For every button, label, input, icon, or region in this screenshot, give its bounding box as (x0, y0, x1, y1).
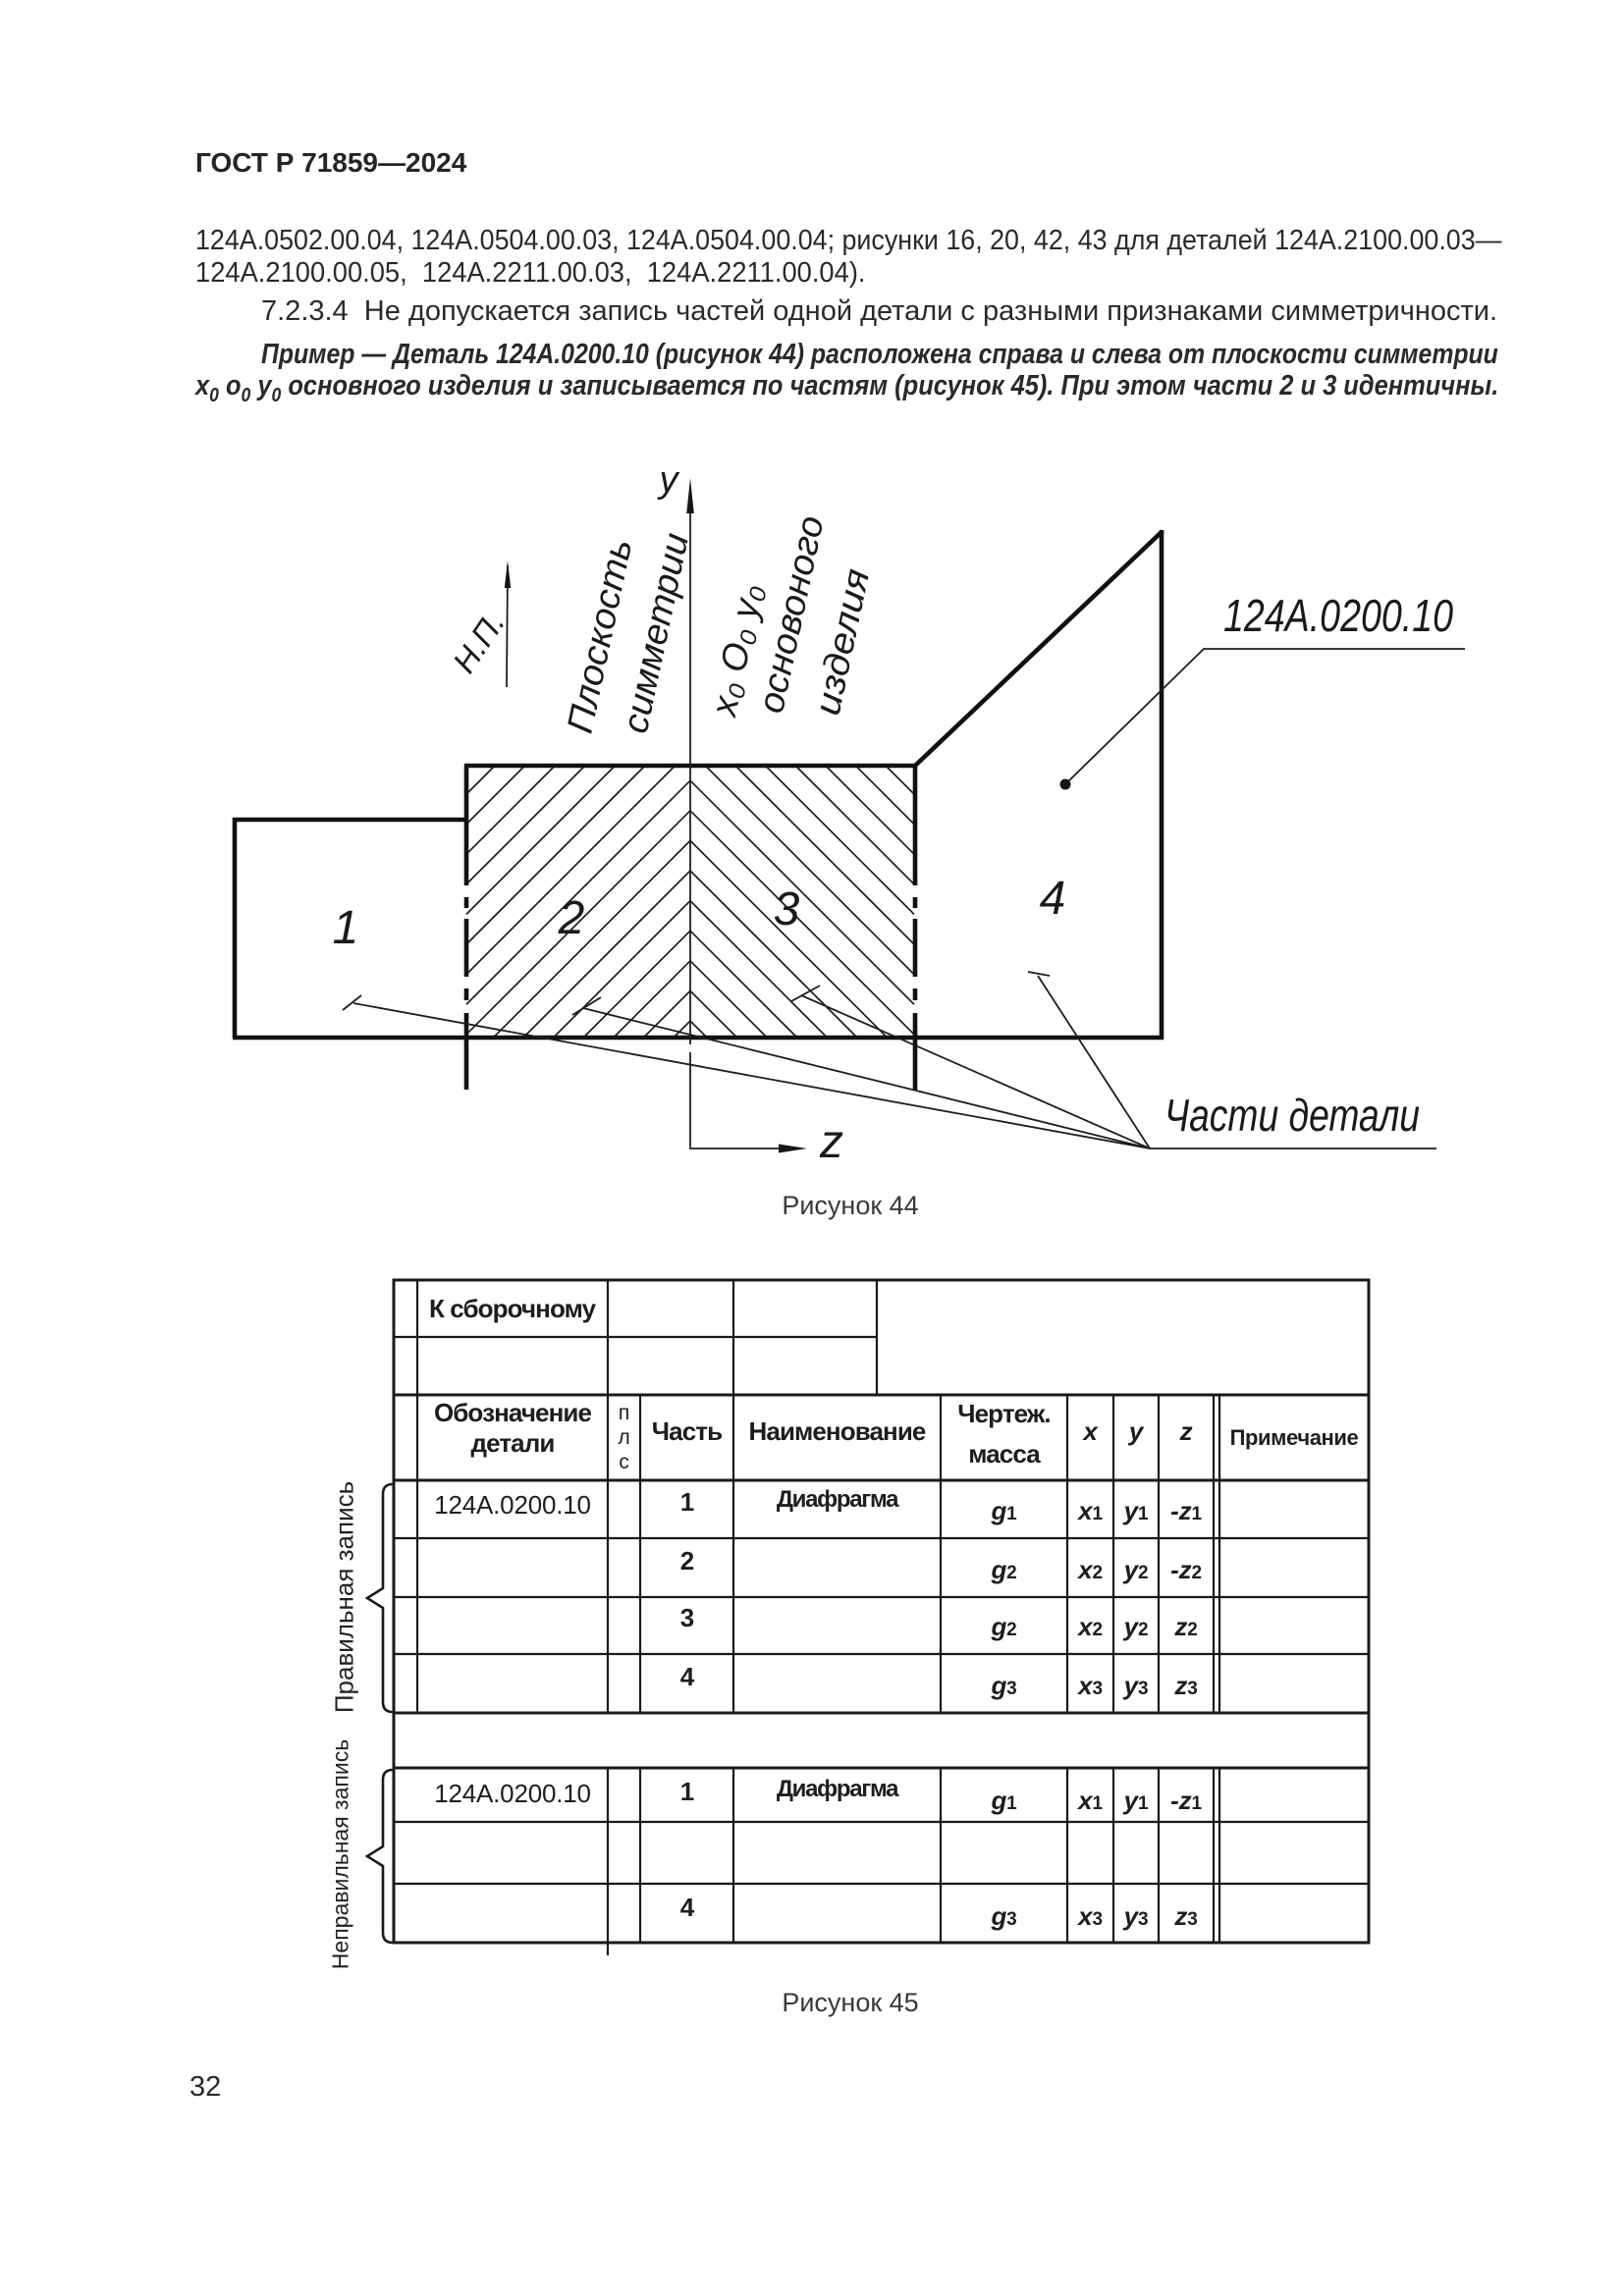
svg-text:124А.0200.10: 124А.0200.10 (1223, 590, 1453, 641)
svg-text:z: z (819, 1116, 843, 1168)
svg-text:Части детали: Части детали (1164, 1090, 1420, 1141)
svg-text:3: 3 (774, 883, 800, 935)
svg-text:4: 4 (1040, 873, 1066, 925)
svg-text:1: 1 (333, 902, 359, 954)
svg-text:2: 2 (558, 892, 585, 944)
svg-text:y: y (657, 459, 680, 501)
svg-text:изделия: изделия (807, 565, 878, 719)
svg-text:Н.П.: Н.П. (446, 606, 513, 679)
